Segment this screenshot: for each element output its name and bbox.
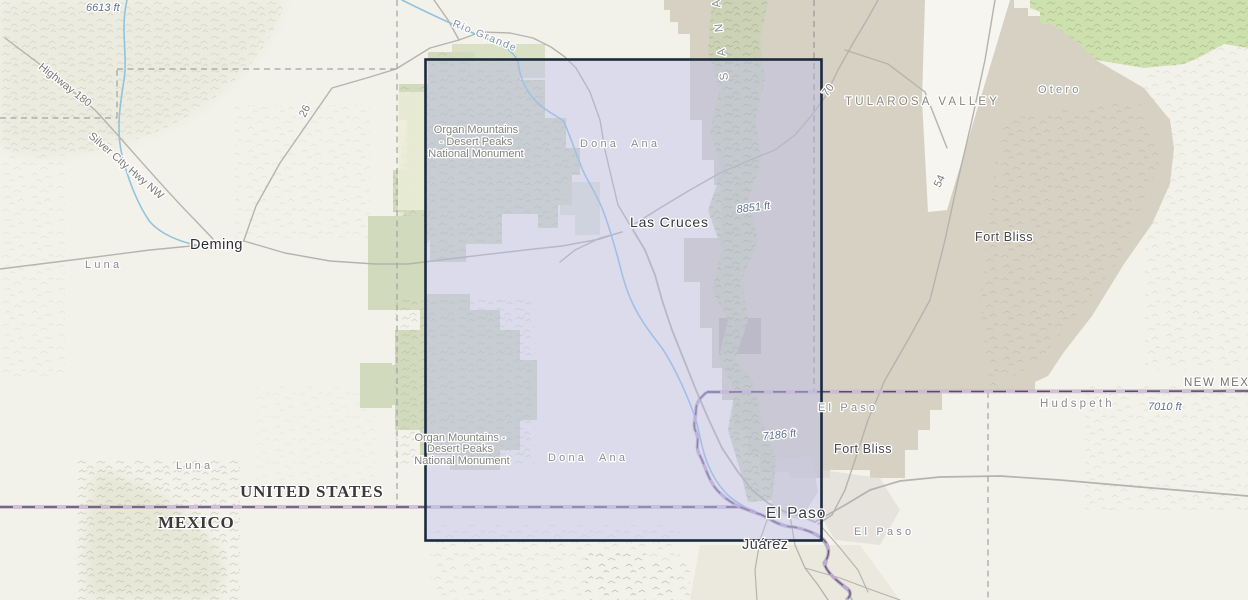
svg-text:6613 ft: 6613 ft [86,2,121,14]
svg-text:Dona Ana: Dona Ana [580,138,660,150]
svg-text:UNITED STATES: UNITED STATES [240,482,383,501]
svg-text:Juárez: Juárez [742,537,789,553]
svg-text:MEXICO: MEXICO [158,513,235,532]
svg-text:- Desert Peaks: - Desert Peaks [440,136,513,148]
svg-text:7010 ft: 7010 ft [1148,401,1183,413]
svg-text:El Paso: El Paso [818,402,878,414]
svg-text:Dona Ana: Dona Ana [548,452,628,464]
svg-text:Luna: Luna [85,259,122,271]
svg-text:Hudspeth: Hudspeth [1040,398,1115,410]
svg-text:Luna: Luna [176,460,213,472]
svg-text:TULAROSA VALLEY: TULAROSA VALLEY [845,96,1000,108]
svg-text:Las Cruces: Las Cruces [630,214,709,230]
svg-text:Organ Mountains: Organ Mountains [434,124,519,136]
svg-text:National Monument: National Monument [428,148,523,160]
svg-text:National Monument: National Monument [414,455,509,467]
svg-text:Desert Peaks: Desert Peaks [427,443,494,455]
svg-text:El Paso: El Paso [766,505,826,522]
svg-text:Deming: Deming [190,237,243,253]
svg-text:Fort Bliss: Fort Bliss [975,230,1033,244]
svg-text:Otero: Otero [1038,84,1082,96]
svg-text:NEW MEXICO: NEW MEXICO [1184,377,1248,389]
svg-text:El Paso: El Paso [854,526,914,538]
svg-text:Fort Bliss: Fort Bliss [834,442,892,456]
